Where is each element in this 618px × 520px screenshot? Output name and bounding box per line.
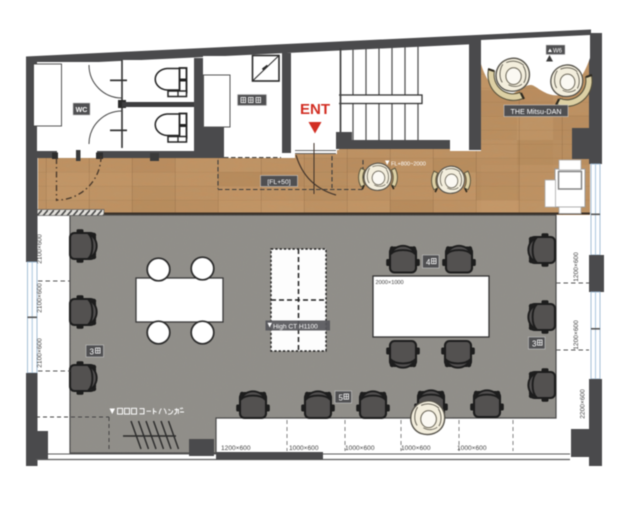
svg-text:2100×600: 2100×600 (37, 283, 44, 313)
svg-text:5: 5 (339, 394, 344, 403)
svg-text:High CT H1100: High CT H1100 (273, 324, 318, 331)
svg-text:WC: WC (76, 107, 88, 114)
svg-text:1200×600: 1200×600 (573, 320, 580, 350)
svg-text:1000×600: 1000×600 (289, 445, 319, 452)
svg-text:ENT: ENT (300, 101, 330, 118)
svg-text:1000×600: 1000×600 (457, 445, 487, 452)
svg-text:2000×1000: 2000×1000 (376, 280, 404, 286)
svg-text:4: 4 (426, 258, 431, 267)
svg-text:2100×600: 2100×600 (37, 338, 44, 368)
svg-text:1200×600: 1200×600 (573, 252, 580, 282)
svg-text:3: 3 (90, 348, 95, 357)
svg-text:1000×600: 1000×600 (345, 445, 375, 452)
svg-text:THE Mitsu-DAN: THE Mitsu-DAN (510, 107, 561, 116)
svg-text:1000×600: 1000×600 (401, 445, 431, 452)
svg-text:W6: W6 (553, 49, 563, 55)
svg-text:1200×600: 1200×600 (221, 445, 251, 452)
svg-text:FL+800~2000: FL+800~2000 (391, 162, 426, 168)
svg-text:[FL+50]: [FL+50] (267, 179, 290, 186)
svg-text:3: 3 (532, 340, 537, 349)
svg-text:2200×600: 2200×600 (580, 389, 587, 419)
svg-text:2100×600: 2100×600 (37, 234, 44, 264)
